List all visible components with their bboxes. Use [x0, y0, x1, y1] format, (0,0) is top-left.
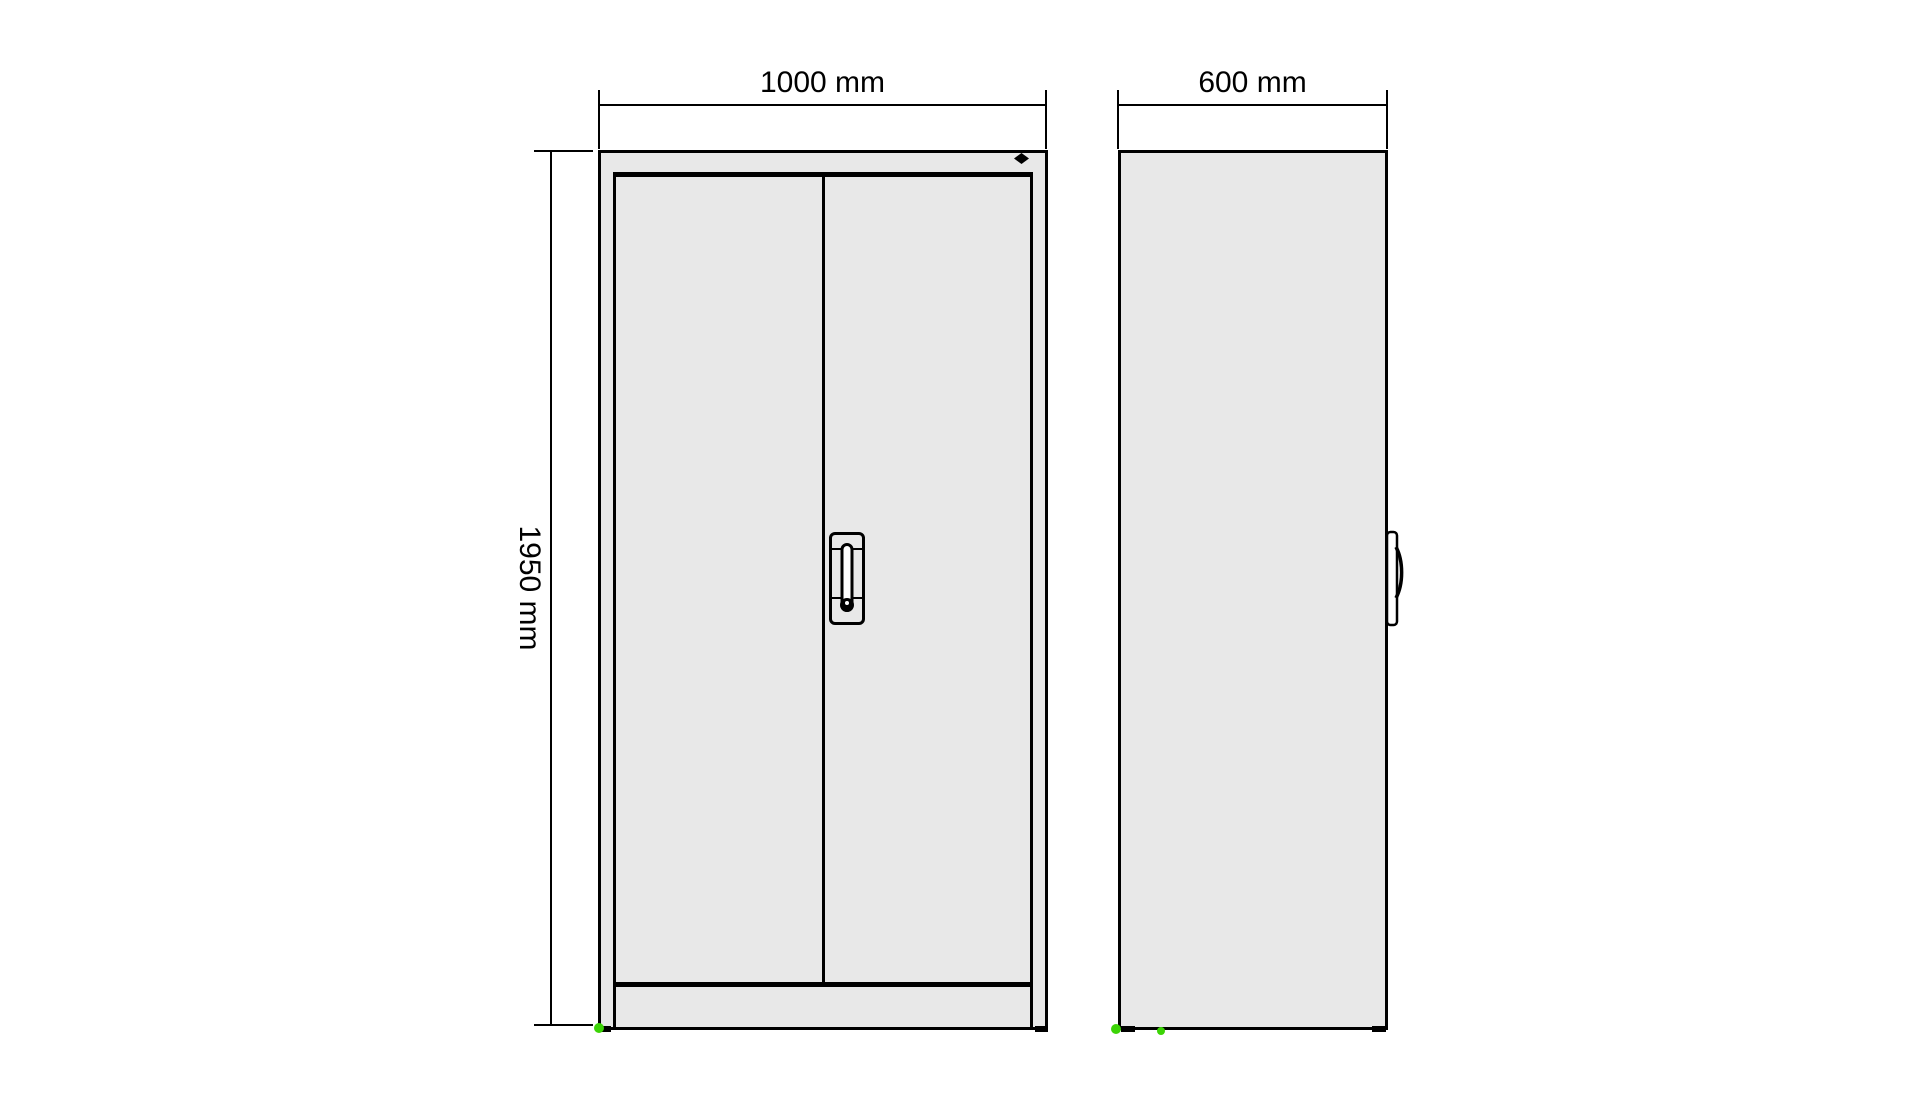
height-dimension-line — [550, 151, 552, 1026]
height-extension-bottom — [534, 1024, 593, 1026]
snap-marker-green — [594, 1023, 604, 1033]
front-foot-right — [1035, 1026, 1048, 1032]
side-foot-right — [1372, 1026, 1386, 1032]
snap-marker-green — [1111, 1024, 1121, 1034]
keyhole-icon — [840, 598, 854, 612]
snap-marker-green — [1157, 1027, 1165, 1035]
door-handle — [829, 532, 865, 625]
front-width-extension-right — [1045, 90, 1047, 149]
side-depth-dimension-line — [1117, 104, 1388, 106]
side-foot-left — [1121, 1026, 1135, 1032]
height-extension-top — [534, 150, 593, 152]
front-width-dimension-label: 1000 mm — [598, 66, 1047, 100]
front-width-dimension-line — [598, 104, 1047, 106]
front-width-extension-left — [598, 90, 600, 149]
front-door-bottom-line — [613, 982, 1033, 987]
front-left-stile-line — [613, 172, 616, 1027]
front-right-stile-line — [1030, 172, 1033, 1027]
side-depth-extension-left — [1117, 90, 1119, 149]
cabinet-technical-drawing: 1000 mm 600 mm 1950 mm — [0, 0, 1920, 1104]
door-handle-profile-icon — [1386, 529, 1408, 629]
side-depth-extension-right — [1386, 90, 1388, 149]
door-divider-line — [822, 175, 825, 982]
side-depth-dimension-label: 600 mm — [1117, 66, 1388, 100]
height-dimension-label: 1950 mm — [512, 525, 546, 650]
side-cabinet-body — [1118, 150, 1388, 1030]
